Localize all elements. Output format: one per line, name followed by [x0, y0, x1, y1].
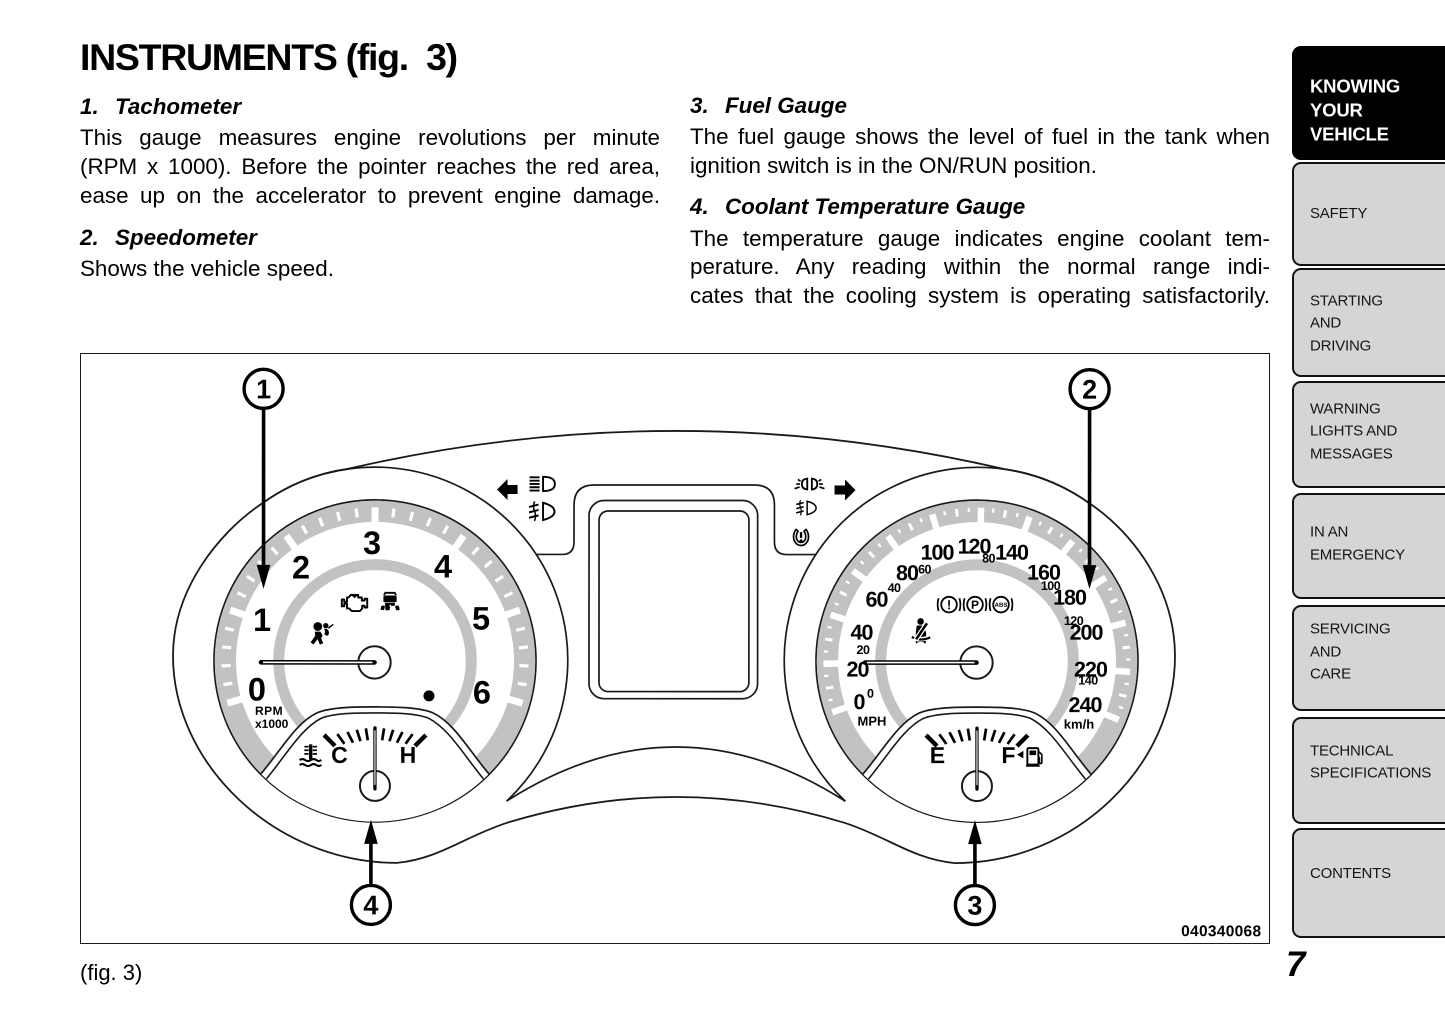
svg-text:140: 140	[1079, 674, 1099, 688]
svg-text:3: 3	[968, 891, 983, 921]
svg-text:x1000: x1000	[255, 717, 289, 731]
svg-text:H: H	[400, 742, 417, 768]
svg-text:100: 100	[921, 541, 955, 565]
svg-text:3: 3	[363, 525, 381, 561]
svg-text:P: P	[971, 598, 979, 612]
svg-text:4: 4	[434, 549, 452, 585]
svg-text:1: 1	[253, 602, 271, 638]
svg-text:6: 6	[473, 675, 491, 711]
svg-text:40: 40	[851, 621, 874, 645]
svg-text:km/h: km/h	[1064, 717, 1094, 732]
svg-text:60: 60	[918, 563, 931, 577]
svg-text:ABS: ABS	[995, 603, 1008, 609]
svg-text:MPH: MPH	[858, 714, 887, 729]
svg-text:2: 2	[1082, 375, 1097, 405]
svg-text:4: 4	[364, 891, 379, 921]
svg-text:120: 120	[1064, 614, 1084, 628]
svg-text:20: 20	[857, 643, 870, 657]
svg-text:5: 5	[472, 601, 490, 637]
svg-text:!: !	[947, 597, 951, 612]
svg-text:0: 0	[854, 690, 866, 714]
svg-text:240: 240	[1069, 693, 1103, 717]
svg-text:0: 0	[867, 687, 874, 701]
svg-text:140: 140	[995, 541, 1029, 565]
svg-text:100: 100	[1041, 579, 1061, 593]
svg-text:RPM: RPM	[255, 704, 283, 718]
svg-text:F: F	[1002, 742, 1016, 768]
svg-text:1: 1	[256, 375, 271, 405]
svg-text:40: 40	[888, 581, 901, 595]
svg-text:60: 60	[866, 588, 889, 612]
svg-text:C: C	[331, 742, 348, 768]
svg-text:E: E	[930, 742, 945, 768]
svg-text:2: 2	[292, 550, 310, 586]
svg-text:80: 80	[982, 552, 995, 566]
svg-text:040340068: 040340068	[1181, 923, 1261, 940]
svg-text:0: 0	[248, 672, 266, 708]
